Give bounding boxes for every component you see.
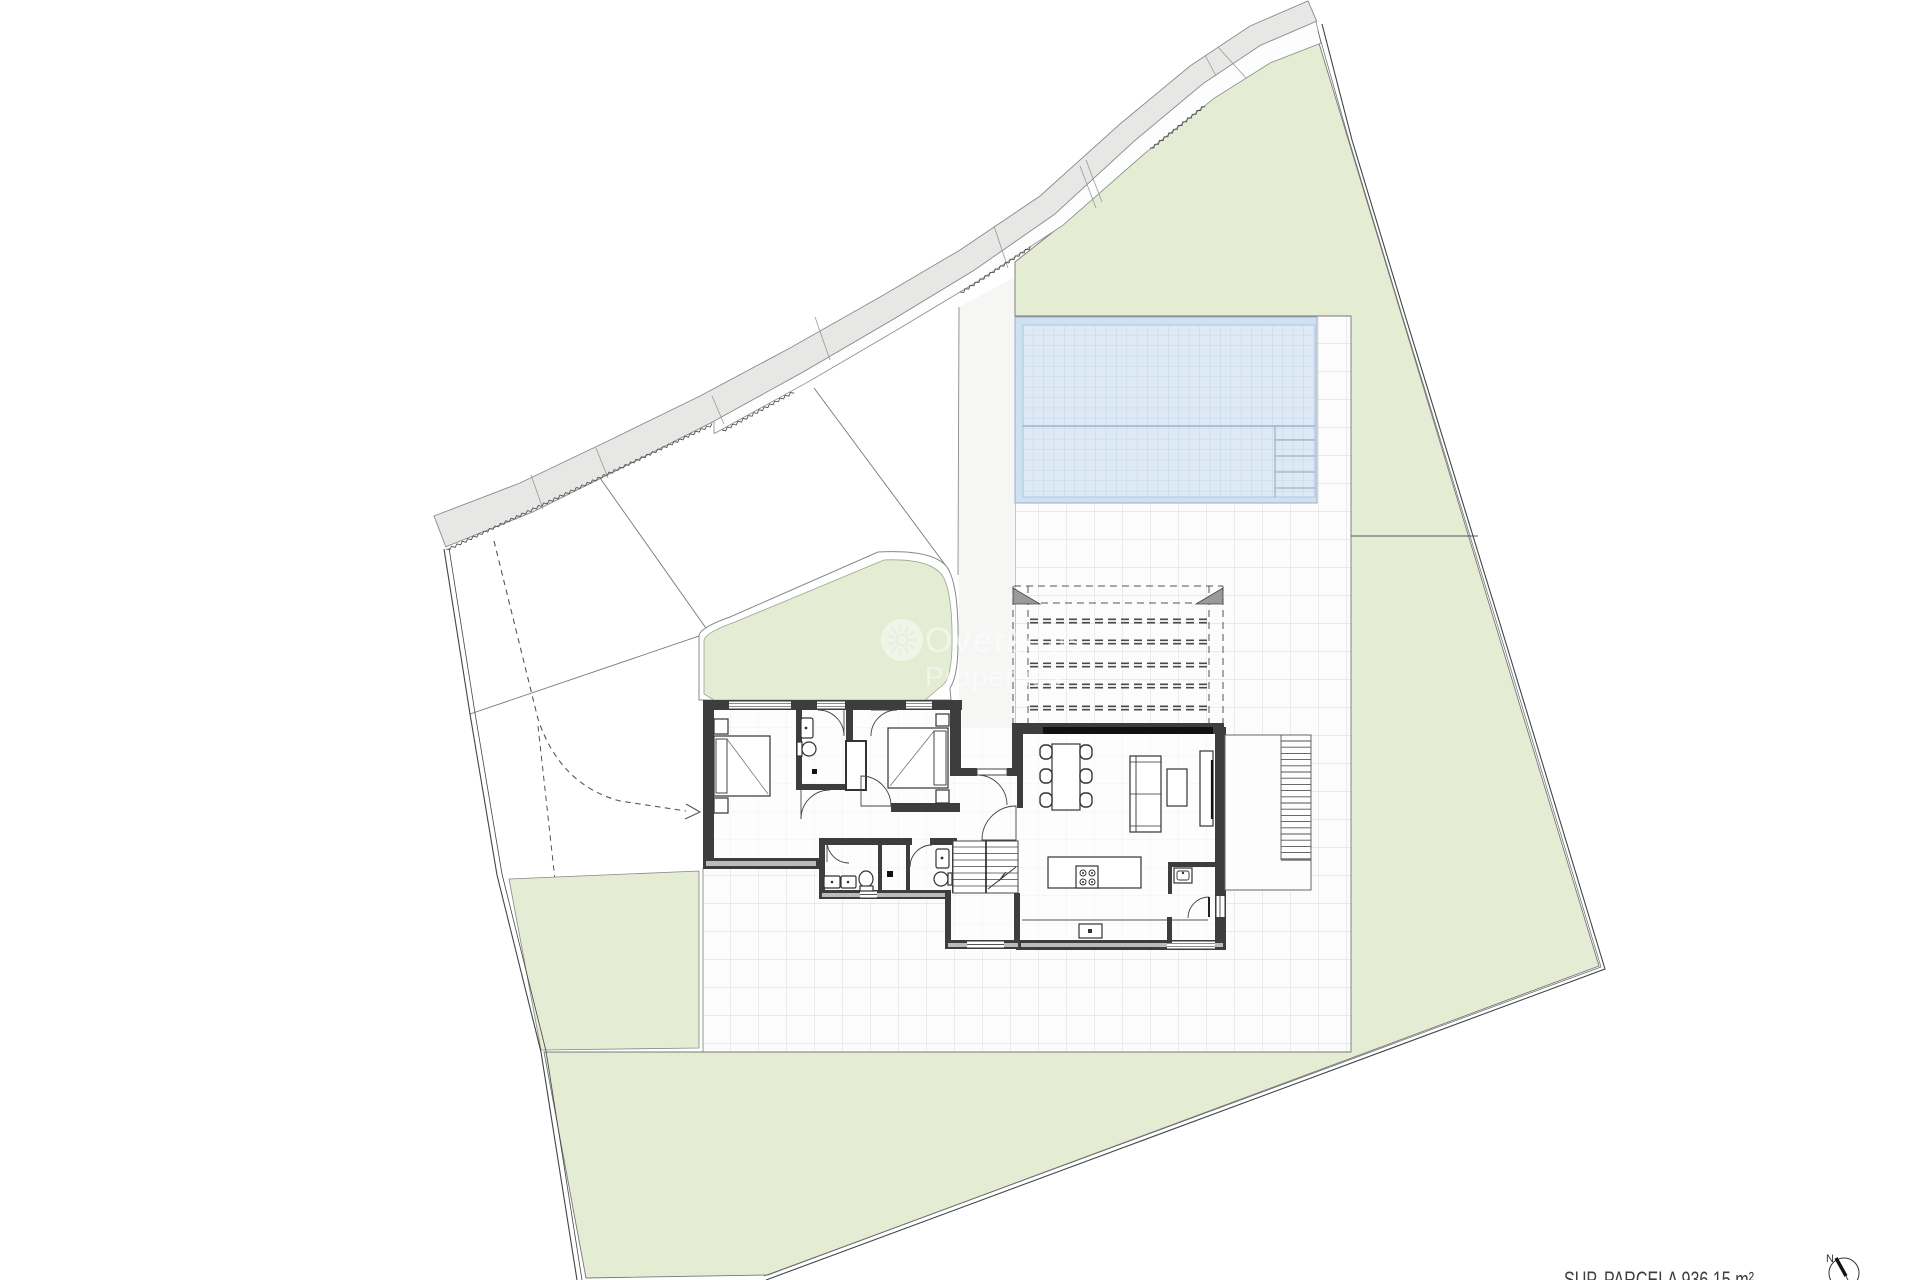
svg-text:Overseas: Overseas <box>925 621 1087 660</box>
svg-text:Properties: Properties <box>925 661 1063 692</box>
svg-text:N: N <box>1826 1253 1834 1265</box>
svg-text:SUP. PARCELA 936,15 m²: SUP. PARCELA 936,15 m² <box>1564 1267 1754 1280</box>
